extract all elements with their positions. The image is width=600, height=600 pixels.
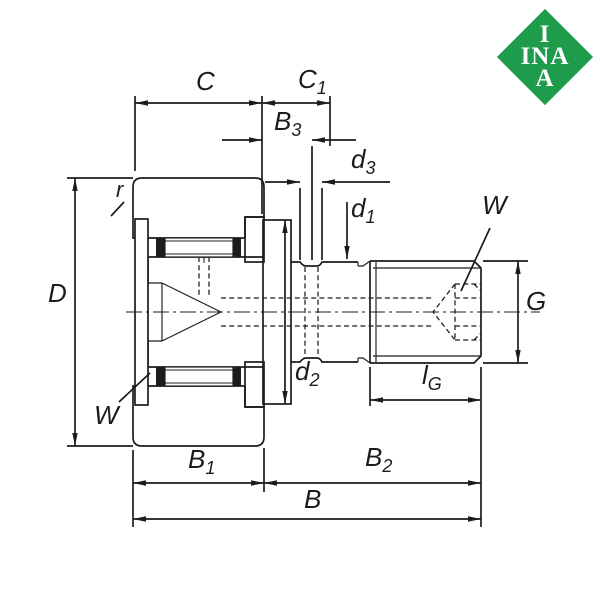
lube-hole-hidden xyxy=(199,257,209,298)
dim-label-d3: d3 xyxy=(351,146,375,177)
dim-label-d2: d2 xyxy=(295,358,319,389)
dim-label-G: G xyxy=(526,288,546,319)
logo-line-3: A xyxy=(535,68,554,90)
dim-label-B1: B1 xyxy=(188,446,215,477)
needle-rollers-bottom xyxy=(165,367,233,386)
dim-label-W-socket: W xyxy=(482,192,507,223)
dim-label-B2: B2 xyxy=(365,444,392,475)
dim-label-r: r xyxy=(116,179,123,205)
dim-label-B3: B3 xyxy=(274,108,301,139)
side-plate-bottom xyxy=(245,362,264,407)
engineering-drawing-page: C C1 B3 d3 d1 r D W G lG d2 B1 B2 B W I … xyxy=(0,0,600,600)
side-plate-top xyxy=(245,217,264,262)
dim-label-d1: d1 xyxy=(351,195,375,226)
dim-label-B: B xyxy=(304,486,321,517)
leader-W-socket xyxy=(461,228,490,291)
dim-label-D: D xyxy=(48,280,67,311)
seal-bottom-right xyxy=(233,367,241,386)
dim-label-C: C xyxy=(196,68,215,99)
seal-bottom-left xyxy=(156,367,165,386)
logo-text: I INA A xyxy=(497,9,593,105)
ina-logo: I INA A xyxy=(497,9,593,105)
dim-label-C1: C1 xyxy=(298,66,327,97)
needle-rollers-top xyxy=(165,238,233,257)
dim-label-lG: lG xyxy=(422,362,442,393)
dim-label-W-seal: W xyxy=(94,402,119,433)
seal-top-right xyxy=(233,238,241,257)
seal-top-left xyxy=(156,238,165,257)
